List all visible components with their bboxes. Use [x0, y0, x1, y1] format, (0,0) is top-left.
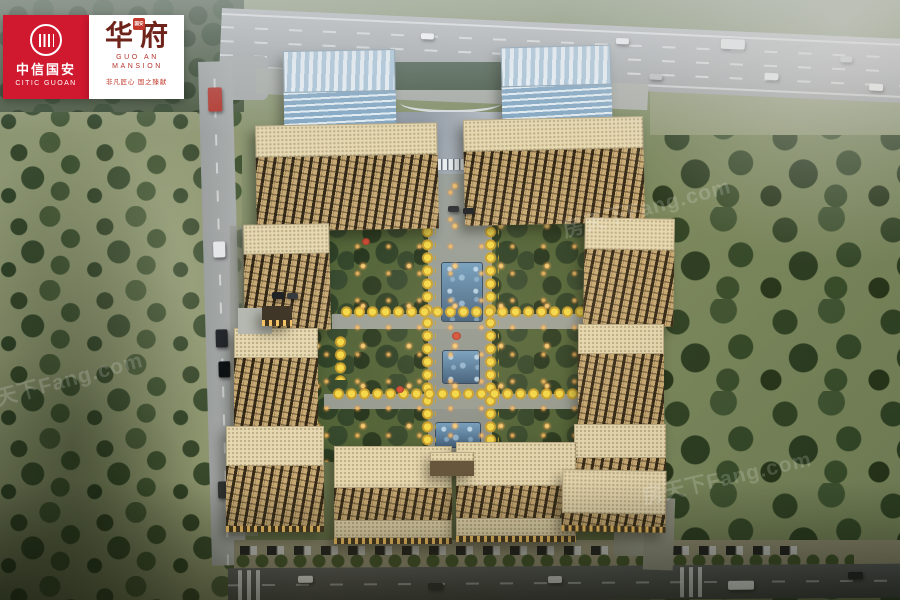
mansion-subtitle-1: GUO AN	[89, 53, 184, 62]
citic-name-cn: 中信国安	[3, 62, 89, 78]
citic-logo-block: 中信国安 CITIC GUOAN	[3, 15, 89, 99]
citic-name-en: CITIC GUOAN	[3, 80, 89, 87]
aerial-render: 房天下Fang.com 房天下Fang.com 房天下Fang.com 中信国安…	[0, 0, 900, 600]
mansion-tagline: 非凡匠心 国之臻献	[89, 76, 184, 86]
mansion-subtitle-2: MANSION	[89, 62, 184, 71]
mansion-seal: 国安	[133, 18, 145, 30]
mansion-title: 华府 国安	[89, 19, 184, 53]
citic-emblem-icon	[30, 24, 62, 56]
mansion-logo-block: 华府 国安 GUO AN MANSION 非凡匠心 国之臻献	[89, 15, 184, 99]
